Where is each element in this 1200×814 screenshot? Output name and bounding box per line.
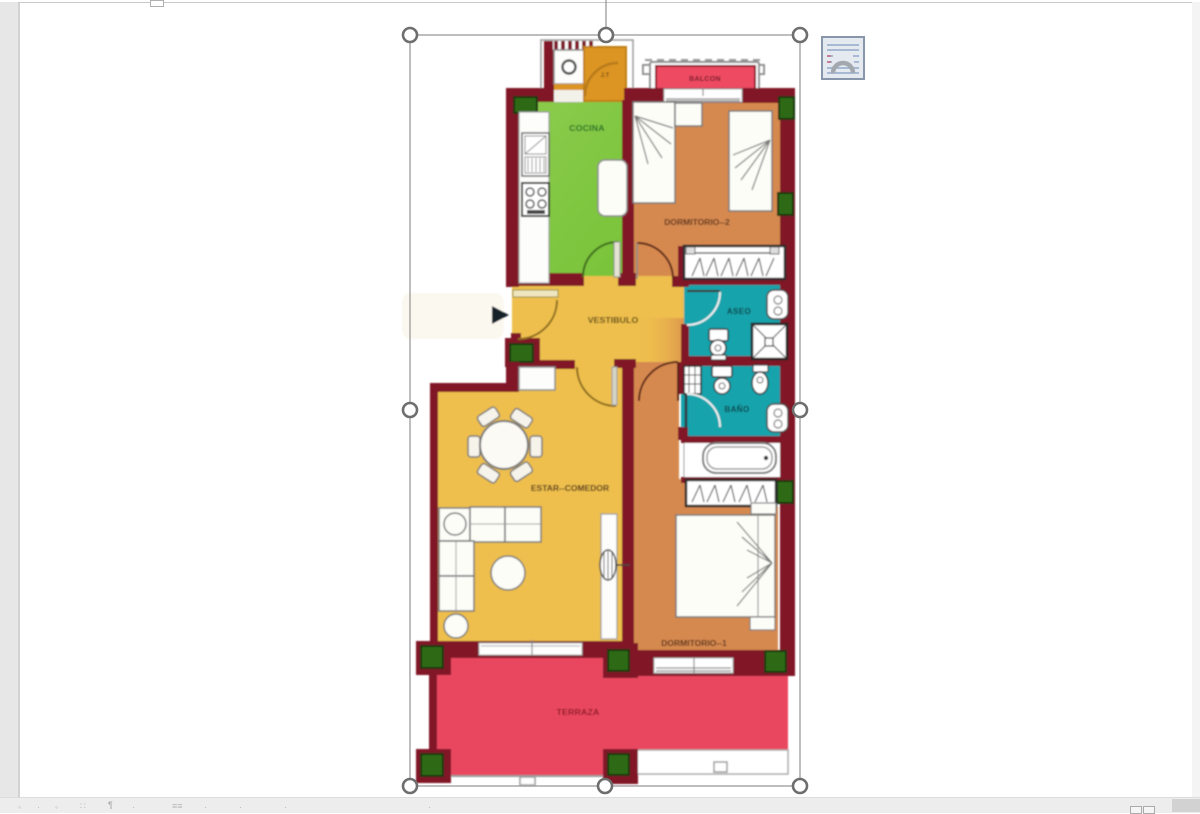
svg-text:COCINA: COCINA	[569, 123, 605, 133]
svg-text:BAÑO: BAÑO	[724, 405, 749, 414]
svg-text:DORMITORIO--1: DORMITORIO--1	[661, 638, 727, 648]
svg-text:ESTAR--COMEDOR: ESTAR--COMEDOR	[531, 483, 609, 493]
svg-text:ASEO: ASEO	[727, 307, 751, 316]
svg-text:VESTIBULO: VESTIBULO	[588, 315, 639, 325]
svg-text:J.T: J.T	[601, 73, 610, 79]
svg-text:TERRAZA: TERRAZA	[557, 707, 600, 717]
svg-text:BALCON: BALCON	[689, 76, 721, 83]
svg-text:DORMITORIO--2: DORMITORIO--2	[664, 217, 730, 227]
